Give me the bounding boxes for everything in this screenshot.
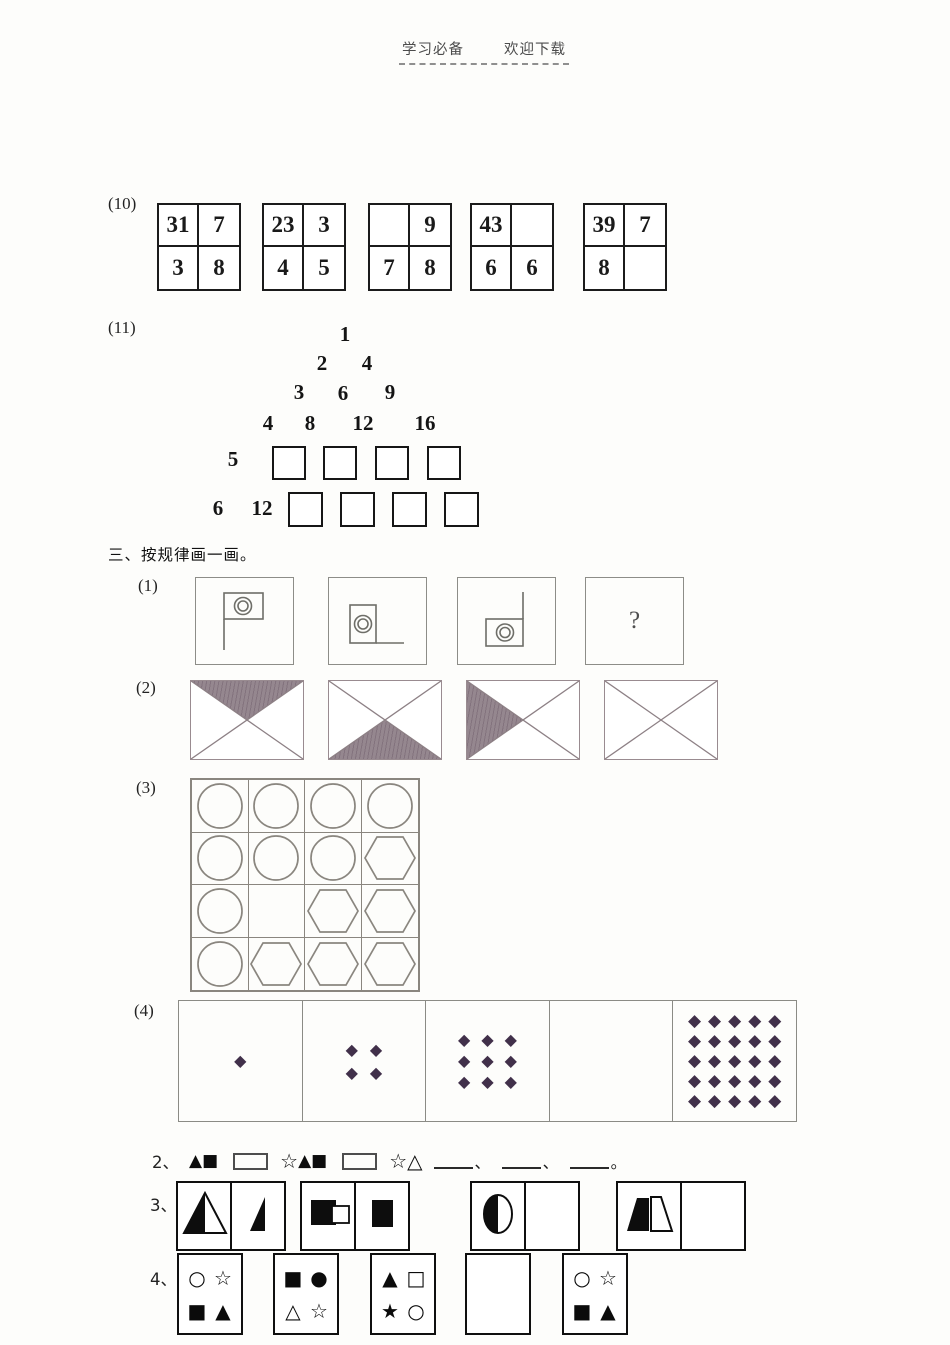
grid-cell: 7 — [370, 247, 410, 289]
question2-row: 2、 ▲ ■ ☆ ▲ ■ ☆ △ 、 、 。 — [152, 1146, 627, 1176]
flag-rotated-90-icon — [329, 578, 426, 664]
overlapping-squares-box — [300, 1181, 356, 1251]
grid-cell: 23 — [264, 205, 304, 247]
shape-cell — [192, 938, 249, 991]
black-half-triangle-icon — [232, 1183, 284, 1245]
diamond-icon: ◆ — [370, 1042, 382, 1058]
diamond-icon: ◆ — [728, 1093, 741, 1110]
section-three-title: 三、按规律画一画。 — [108, 543, 257, 565]
grid-cell: 7 — [199, 205, 239, 247]
shape-cell — [192, 780, 249, 833]
q11-label: (11) — [108, 318, 136, 338]
filled-triangle-icon: ▲ — [600, 1301, 615, 1321]
number-grid-1: 31 7 3 8 — [157, 203, 241, 291]
shape-cell — [192, 833, 249, 886]
filled-triangle-icon: ▲ — [298, 1153, 311, 1170]
grid-cell: 8 — [199, 247, 239, 289]
diamond-icon: ◆ — [748, 1013, 761, 1030]
diamond-icon: ◆ — [748, 1073, 761, 1090]
grid-cell: 4 — [264, 247, 304, 289]
pyramid-number: 4 — [349, 351, 385, 376]
number-grid-4: 43 6 6 — [470, 203, 554, 291]
filled-triangle-icon: ▲ — [382, 1268, 397, 1288]
diamond-icon: ◆ — [458, 1053, 470, 1069]
pyramid-number: 2 — [304, 351, 340, 376]
pyramid-number: 9 — [372, 380, 408, 405]
shape-cell — [249, 780, 306, 833]
grid-cell: 8 — [410, 247, 450, 289]
black-square-icon — [356, 1183, 408, 1245]
diamond-icon: ◆ — [768, 1093, 781, 1110]
period: 。 — [611, 1149, 627, 1173]
black-part-box — [230, 1181, 286, 1251]
item3-label: (3) — [136, 778, 156, 798]
flag-rotated-180-icon — [458, 578, 555, 664]
diamond-icon: ◆ — [708, 1033, 721, 1050]
diagonals-icon — [191, 681, 303, 759]
answer-blank-line — [570, 1153, 609, 1169]
answer-box — [680, 1181, 746, 1251]
black-white-squares-icon — [302, 1183, 354, 1245]
diamond-icon: ◆ — [458, 1032, 470, 1048]
filled-star-icon: ★ — [381, 1301, 399, 1321]
blank-rectangle — [233, 1153, 268, 1170]
flag-box-1 — [195, 577, 294, 665]
diamond-icon: ◆ — [688, 1073, 701, 1090]
diamond-icon: ◆ — [728, 1033, 741, 1050]
diamond-icon: ◆ — [728, 1013, 741, 1030]
diagonals-icon — [467, 681, 579, 759]
glyph-answer-box — [465, 1253, 531, 1335]
diamond-icon: ◆ — [708, 1073, 721, 1090]
header-right-text: 欢迎下载 — [504, 38, 566, 59]
filled-triangle-icon: ▲ — [215, 1301, 230, 1321]
diamond-icon: ◆ — [458, 1074, 470, 1090]
flag-up-icon — [196, 578, 293, 664]
star-outline-icon: ☆ — [599, 1268, 617, 1288]
header-left-text: 学习必备 — [402, 38, 464, 59]
pair-2 — [300, 1181, 410, 1251]
diamond-cell-4: ◆◆◆◆ — [303, 1001, 427, 1121]
answer-box — [323, 446, 357, 480]
diamond-icon: ◆ — [346, 1065, 358, 1081]
half-shaded-trapezoid-box — [616, 1181, 682, 1251]
pyramid-number: 1 — [327, 322, 363, 347]
question2-label: 2、 — [152, 1149, 179, 1173]
answer-box — [340, 492, 375, 527]
x-box-2 — [328, 680, 442, 760]
item4-label: (4) — [134, 1001, 154, 1021]
filled-circle-icon: ● — [310, 1268, 327, 1288]
flag-box-3 — [457, 577, 556, 665]
grid-cell: 5 — [304, 247, 344, 289]
pyramid-number: 5 — [215, 447, 251, 472]
separator: 、 — [543, 1149, 559, 1173]
glyph-box-5: ○ ☆ ■ ▲ — [562, 1253, 628, 1335]
pyramid-number: 12 — [244, 496, 280, 521]
page-header: 学习必备 欢迎下载 — [399, 38, 569, 65]
triangle-outline-icon: △ — [407, 1151, 422, 1171]
circle-outline-icon: ○ — [407, 1301, 424, 1321]
square-outline-icon: □ — [407, 1268, 426, 1288]
diamond-icon: ◆ — [234, 1053, 246, 1069]
answer-box — [524, 1181, 580, 1251]
diamond-icon: ◆ — [505, 1053, 517, 1069]
diamond-icon: ◆ — [688, 1033, 701, 1050]
diamond-icon: ◆ — [748, 1093, 761, 1110]
grid-cell: 6 — [472, 247, 512, 289]
diamond-icon: ◆ — [505, 1074, 517, 1090]
diamond-icon: ◆ — [505, 1032, 517, 1048]
shape-grid — [190, 778, 420, 992]
split-triangle-box — [176, 1181, 232, 1251]
half-shaded-ellipse-icon — [472, 1183, 524, 1245]
answer-box — [392, 492, 427, 527]
shape-cell — [305, 885, 362, 938]
diamond-icon: ◆ — [748, 1053, 761, 1070]
flag-answer-box: ? — [585, 577, 684, 665]
grid-cell-blank — [625, 247, 665, 289]
diamond-icon: ◆ — [481, 1032, 493, 1048]
empty-icon — [526, 1183, 578, 1245]
pair-1 — [176, 1181, 286, 1251]
diamond-answer-cell — [550, 1001, 674, 1121]
shape-cell — [362, 938, 419, 991]
answer-box — [272, 446, 306, 480]
triangle-outline-icon: △ — [285, 1301, 300, 1321]
shape-cell — [305, 780, 362, 833]
diamond-icon: ◆ — [688, 1053, 701, 1070]
pair-4 — [616, 1181, 746, 1251]
answer-box — [288, 492, 323, 527]
filled-square-icon: ■ — [284, 1268, 303, 1288]
separator: 、 — [475, 1149, 491, 1173]
answer-blank-line — [502, 1153, 541, 1169]
filled-triangle-icon: ▲ — [189, 1153, 202, 1170]
number-grid-3: 9 7 8 — [368, 203, 452, 291]
pyramid-number: 6 — [200, 496, 236, 521]
shape-cell — [362, 833, 419, 886]
pyramid-number: 8 — [292, 411, 328, 436]
diamond-cell-9: ◆◆◆◆◆◆◆◆◆ — [426, 1001, 550, 1121]
diamond-icon: ◆ — [708, 1053, 721, 1070]
x-box-3 — [466, 680, 580, 760]
diamond-icon: ◆ — [768, 1013, 781, 1030]
worksheet-page: 学习必备 欢迎下载 (10) 31 7 3 8 23 3 4 5 9 7 8 4… — [0, 0, 950, 1345]
star-outline-icon: ☆ — [280, 1151, 298, 1171]
number-grid-2: 23 3 4 5 — [262, 203, 346, 291]
shape-cell — [249, 833, 306, 886]
filled-square-icon: ■ — [188, 1301, 207, 1321]
pyramid-number: 4 — [250, 411, 286, 436]
star-outline-icon: ☆ — [310, 1301, 328, 1321]
diamond-icon: ◆ — [481, 1074, 493, 1090]
diamond-icon: ◆ — [728, 1073, 741, 1090]
star-outline-icon: ☆ — [214, 1268, 232, 1288]
diagonals-icon — [605, 681, 717, 759]
diamond-icon: ◆ — [708, 1093, 721, 1110]
diamond-icon: ◆ — [481, 1053, 493, 1069]
grid-cell-blank — [512, 205, 552, 247]
grid-cell: 3 — [159, 247, 199, 289]
black-part-box — [354, 1181, 410, 1251]
diamond-icon: ◆ — [768, 1073, 781, 1090]
diamond-icon: ◆ — [370, 1065, 382, 1081]
grid-cell: 39 — [585, 205, 625, 247]
shape-cell — [305, 938, 362, 991]
half-shaded-ellipse-box — [470, 1181, 526, 1251]
grid-cell: 43 — [472, 205, 512, 247]
shape-cell-blank — [249, 885, 306, 938]
pair-3 — [470, 1181, 580, 1251]
shape-cell — [305, 833, 362, 886]
diamond-icon: ◆ — [688, 1093, 701, 1110]
grid-cell: 31 — [159, 205, 199, 247]
pyramid-number: 12 — [345, 411, 381, 436]
question-mark: ? — [629, 607, 640, 635]
empty-icon — [682, 1183, 744, 1245]
pyramid-number: 6 — [325, 381, 361, 406]
diamond-icon: ◆ — [728, 1053, 741, 1070]
filled-square-icon: ■ — [202, 1153, 218, 1170]
number-grid-5: 39 7 8 — [583, 203, 667, 291]
diagonals-icon — [329, 681, 441, 759]
pyramid-number: 16 — [407, 411, 443, 436]
filled-square-icon: ■ — [311, 1153, 327, 1170]
shape-cell — [362, 885, 419, 938]
shape-cell — [362, 780, 419, 833]
answer-blank-line — [434, 1153, 473, 1169]
shape-cell — [249, 938, 306, 991]
blank-rectangle — [342, 1153, 377, 1170]
star-outline-icon: ☆ — [389, 1151, 407, 1171]
answer-box — [427, 446, 461, 480]
shape-cell — [192, 885, 249, 938]
glyph-box-3: ▲ □ ★ ○ — [370, 1253, 436, 1335]
item1-label: (1) — [138, 576, 158, 596]
diamond-strip: ◆ ◆◆◆◆ ◆◆◆◆◆◆◆◆◆ ◆◆◆◆◆◆◆◆◆◆◆◆◆◆◆◆◆◆◆◆◆◆◆… — [178, 1000, 797, 1122]
half-shaded-trapezoid-icon — [618, 1183, 680, 1245]
circle-outline-icon: ○ — [188, 1268, 205, 1288]
grid-cell: 3 — [304, 205, 344, 247]
question4-label: 4、 — [150, 1266, 177, 1290]
diamond-icon: ◆ — [768, 1053, 781, 1070]
diamond-cell-1: ◆ — [179, 1001, 303, 1121]
pyramid-number: 3 — [281, 380, 317, 405]
grid-cell: 6 — [512, 247, 552, 289]
answer-box — [375, 446, 409, 480]
diamond-icon: ◆ — [748, 1033, 761, 1050]
flag-box-2 — [328, 577, 427, 665]
half-shaded-triangle-icon — [178, 1183, 230, 1245]
item2-label: (2) — [136, 678, 156, 698]
diamond-icon: ◆ — [346, 1042, 358, 1058]
x-answer-box — [604, 680, 718, 760]
grid-cell: 7 — [625, 205, 665, 247]
grid-cell: 9 — [410, 205, 450, 247]
diamond-icon: ◆ — [708, 1013, 721, 1030]
diamond-icon: ◆ — [688, 1013, 701, 1030]
glyph-box-1: ○ ☆ ■ ▲ — [177, 1253, 243, 1335]
answer-box — [444, 492, 479, 527]
filled-square-icon: ■ — [573, 1301, 592, 1321]
diamond-cell-25: ◆◆◆◆◆◆◆◆◆◆◆◆◆◆◆◆◆◆◆◆◆◆◆◆◆ — [673, 1001, 796, 1121]
question3-label: 3、 — [150, 1192, 177, 1216]
grid-cell-blank — [370, 205, 410, 247]
diamond-icon: ◆ — [768, 1033, 781, 1050]
grid-cell: 8 — [585, 247, 625, 289]
q10-label: (10) — [108, 194, 136, 214]
x-box-1 — [190, 680, 304, 760]
glyph-box-2: ■ ● △ ☆ — [273, 1253, 339, 1335]
circle-outline-icon: ○ — [573, 1268, 590, 1288]
